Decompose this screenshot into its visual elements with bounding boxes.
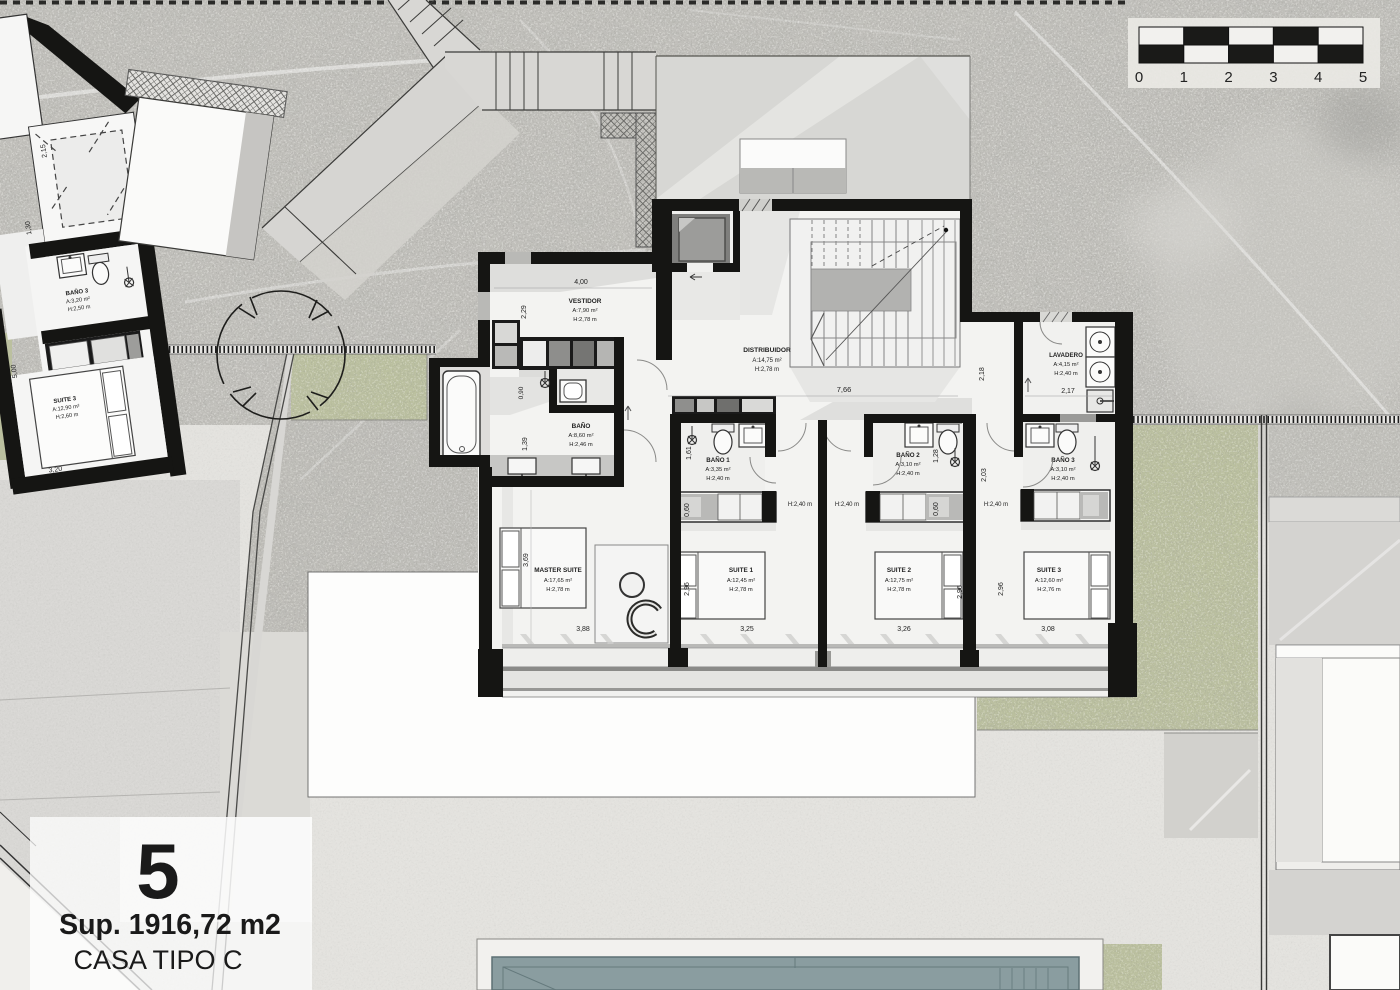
svg-text:A:12,45 m²: A:12,45 m² bbox=[727, 578, 755, 584]
svg-text:5: 5 bbox=[1359, 69, 1367, 86]
svg-text:SUITE 3: SUITE 3 bbox=[1037, 567, 1062, 574]
svg-text:A:8,60 m²: A:8,60 m² bbox=[568, 433, 593, 439]
svg-text:A:7,90 m²: A:7,90 m² bbox=[572, 308, 597, 314]
svg-text:1,39: 1,39 bbox=[522, 437, 529, 451]
svg-text:3,25: 3,25 bbox=[740, 626, 754, 633]
svg-text:A:12,60 m²: A:12,60 m² bbox=[1035, 578, 1063, 584]
svg-text:4: 4 bbox=[1314, 69, 1322, 86]
svg-text:H:2,40 m: H:2,40 m bbox=[1054, 371, 1078, 377]
svg-text:VESTIDOR: VESTIDOR bbox=[569, 298, 602, 305]
svg-text:4,00: 4,00 bbox=[574, 279, 588, 286]
svg-text:0,60: 0,60 bbox=[684, 503, 691, 517]
svg-text:BAÑO: BAÑO bbox=[572, 421, 591, 430]
svg-text:LAVADERO: LAVADERO bbox=[1049, 352, 1083, 359]
svg-text:BAÑO 3: BAÑO 3 bbox=[1051, 457, 1075, 464]
svg-text:2: 2 bbox=[1224, 69, 1232, 86]
svg-text:3,08: 3,08 bbox=[1041, 626, 1055, 633]
svg-text:SUITE 2: SUITE 2 bbox=[887, 567, 912, 574]
svg-text:A:3,35 m²: A:3,35 m² bbox=[705, 467, 730, 473]
svg-text:H:2,78 m: H:2,78 m bbox=[546, 587, 570, 593]
svg-text:0,90: 0,90 bbox=[518, 386, 525, 399]
svg-text:H:2,40 m: H:2,40 m bbox=[835, 502, 859, 508]
svg-text:MASTER SUITE: MASTER SUITE bbox=[534, 567, 582, 574]
svg-text:H:2,78 m: H:2,78 m bbox=[573, 317, 597, 323]
svg-text:0,60: 0,60 bbox=[933, 502, 940, 516]
svg-text:3,88: 3,88 bbox=[576, 626, 590, 633]
svg-text:Sup. 1916,72 m2: Sup. 1916,72 m2 bbox=[59, 909, 281, 941]
svg-text:A:4,15 m²: A:4,15 m² bbox=[1053, 362, 1078, 368]
svg-text:3: 3 bbox=[1269, 69, 1277, 86]
svg-text:H:2,40 m: H:2,40 m bbox=[1051, 476, 1075, 482]
svg-text:H:2,40 m: H:2,40 m bbox=[706, 476, 730, 482]
svg-text:H:2,78 m: H:2,78 m bbox=[755, 367, 779, 373]
svg-text:SUITE 1: SUITE 1 bbox=[729, 567, 754, 574]
svg-text:2,29: 2,29 bbox=[521, 305, 528, 319]
svg-text:A:12,75 m²: A:12,75 m² bbox=[885, 578, 913, 584]
svg-text:DISTRIBUIDOR: DISTRIBUIDOR bbox=[743, 347, 791, 354]
svg-text:7,66: 7,66 bbox=[837, 385, 852, 394]
svg-text:3,69: 3,69 bbox=[523, 553, 530, 567]
svg-text:2,03: 2,03 bbox=[981, 468, 988, 482]
svg-text:A:3,10 m²: A:3,10 m² bbox=[1050, 467, 1075, 473]
svg-text:H:2,40 m: H:2,40 m bbox=[984, 502, 1008, 508]
svg-text:2,96: 2,96 bbox=[998, 582, 1005, 596]
svg-text:BAÑO 2: BAÑO 2 bbox=[896, 452, 920, 459]
svg-text:H:2,76 m: H:2,76 m bbox=[1037, 587, 1061, 593]
svg-text:H:2,78 m: H:2,78 m bbox=[887, 587, 911, 593]
svg-text:H:2,40 m: H:2,40 m bbox=[788, 502, 812, 508]
svg-text:A:14,75 m²: A:14,75 m² bbox=[752, 358, 781, 364]
svg-text:CASA TIPO C: CASA TIPO C bbox=[73, 945, 242, 975]
svg-text:5: 5 bbox=[136, 827, 179, 915]
svg-text:2,17: 2,17 bbox=[1061, 388, 1075, 395]
svg-text:1: 1 bbox=[1180, 69, 1188, 86]
svg-text:H:2,78 m: H:2,78 m bbox=[729, 587, 753, 593]
svg-text:2,18: 2,18 bbox=[979, 367, 986, 381]
svg-text:A:17,65 m²: A:17,65 m² bbox=[544, 578, 572, 584]
svg-text:1,61: 1,61 bbox=[686, 446, 693, 460]
svg-text:2,96: 2,96 bbox=[957, 585, 964, 599]
svg-text:0: 0 bbox=[1135, 69, 1143, 86]
svg-text:2,96: 2,96 bbox=[684, 582, 691, 596]
svg-text:H:2,46 m: H:2,46 m bbox=[569, 442, 593, 448]
svg-text:BAÑO 1: BAÑO 1 bbox=[706, 457, 730, 464]
svg-text:1,28: 1,28 bbox=[933, 449, 940, 463]
svg-text:H:2,40 m: H:2,40 m bbox=[896, 471, 920, 477]
svg-text:3,26: 3,26 bbox=[897, 626, 911, 633]
